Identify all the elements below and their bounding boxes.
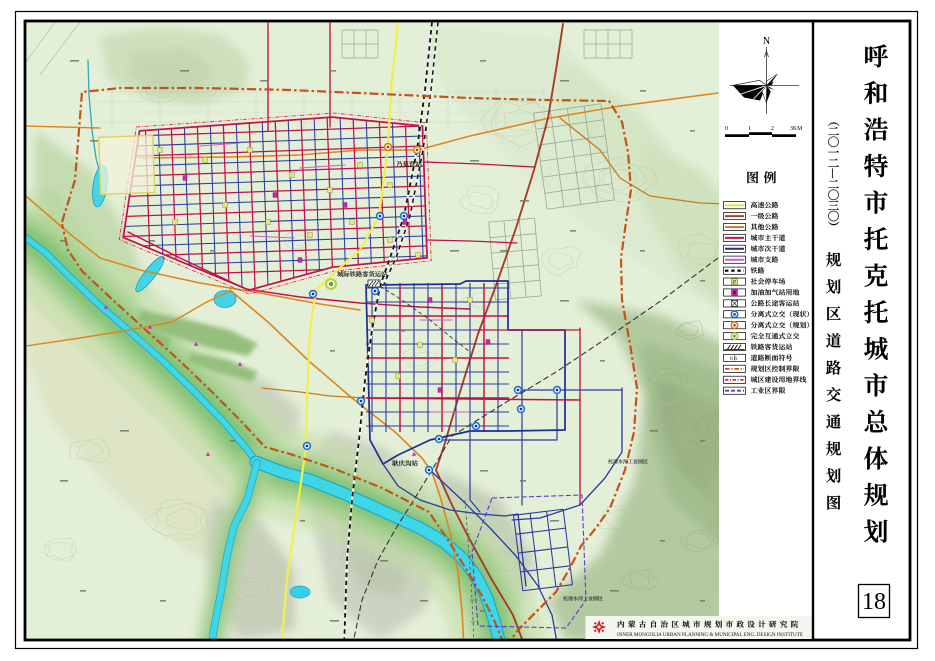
svg-text:N: N: [763, 36, 770, 47]
svg-text:2: 2: [771, 126, 774, 132]
svg-text:INNER MONGOLIA URBAN PLANNING: INNER MONGOLIA URBAN PLANNING & MUNICIPA…: [617, 632, 803, 638]
svg-text:3KM: 3KM: [790, 126, 802, 132]
svg-text:P: P: [733, 280, 737, 286]
svg-text:0: 0: [725, 126, 728, 132]
svg-text:6 6: 6 6: [730, 356, 737, 362]
svg-text:18: 18: [862, 589, 886, 615]
svg-text:1: 1: [748, 126, 751, 132]
